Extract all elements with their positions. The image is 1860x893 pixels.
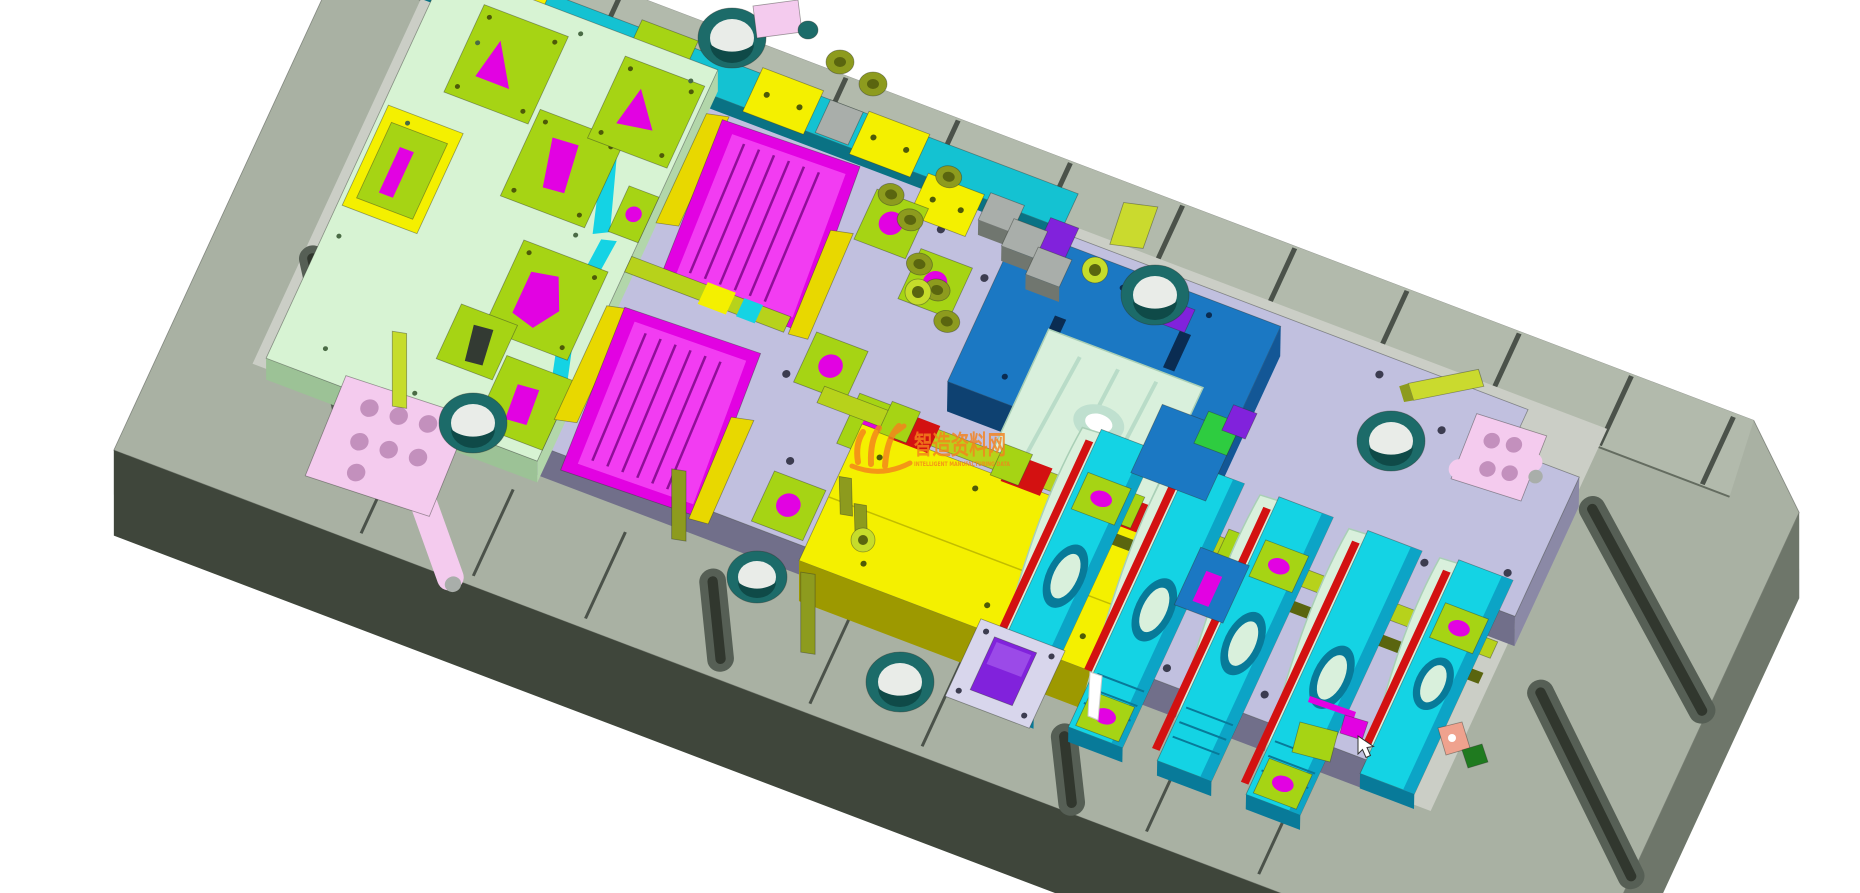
watermark-subtitle: INTELLIGENT MANUFACTURING DATA	[914, 460, 1010, 468]
guide-bushing	[727, 551, 787, 603]
guide-bushing	[439, 393, 507, 453]
guide-bushing	[1357, 411, 1425, 471]
cad-viewport[interactable]: 智造资料网 INTELLIGENT MANUFACTURING DATA	[0, 0, 1860, 893]
pilot-block-pink	[753, 0, 802, 38]
model-render: 智造资料网 INTELLIGENT MANUFACTURING DATA	[0, 0, 1860, 893]
guide-bushing	[866, 652, 934, 712]
watermark-title: 智造资料网	[914, 431, 1006, 461]
guide-bushing	[1121, 265, 1189, 325]
